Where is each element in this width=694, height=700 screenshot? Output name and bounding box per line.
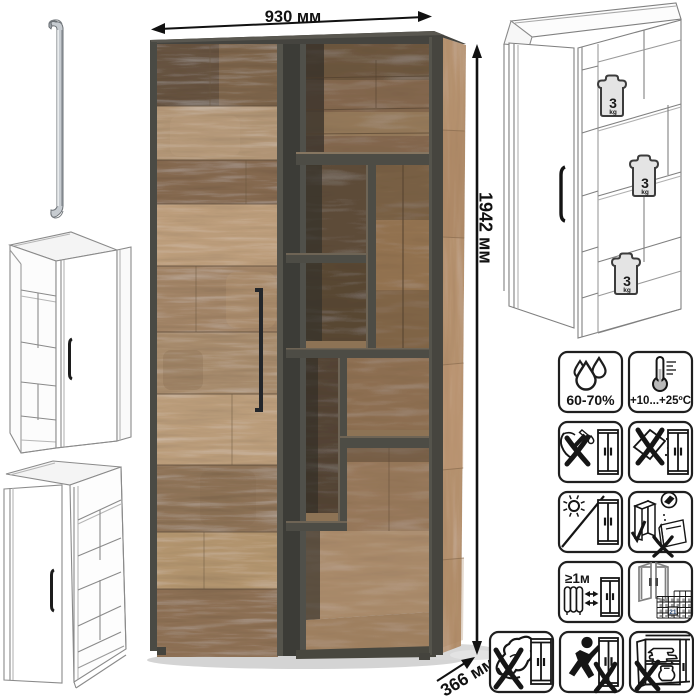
svg-text:≥1м: ≥1м [565, 571, 590, 586]
svg-text:+10...+25ºС: +10...+25ºС [630, 395, 691, 407]
svg-text:1942 мм: 1942 мм [476, 192, 496, 264]
svg-text:21: 21 [669, 609, 677, 616]
svg-text:kg: kg [623, 287, 631, 294]
svg-text:kg: kg [641, 189, 649, 196]
svg-text:kg: kg [609, 109, 617, 116]
svg-text:60-70%: 60-70% [566, 392, 615, 408]
